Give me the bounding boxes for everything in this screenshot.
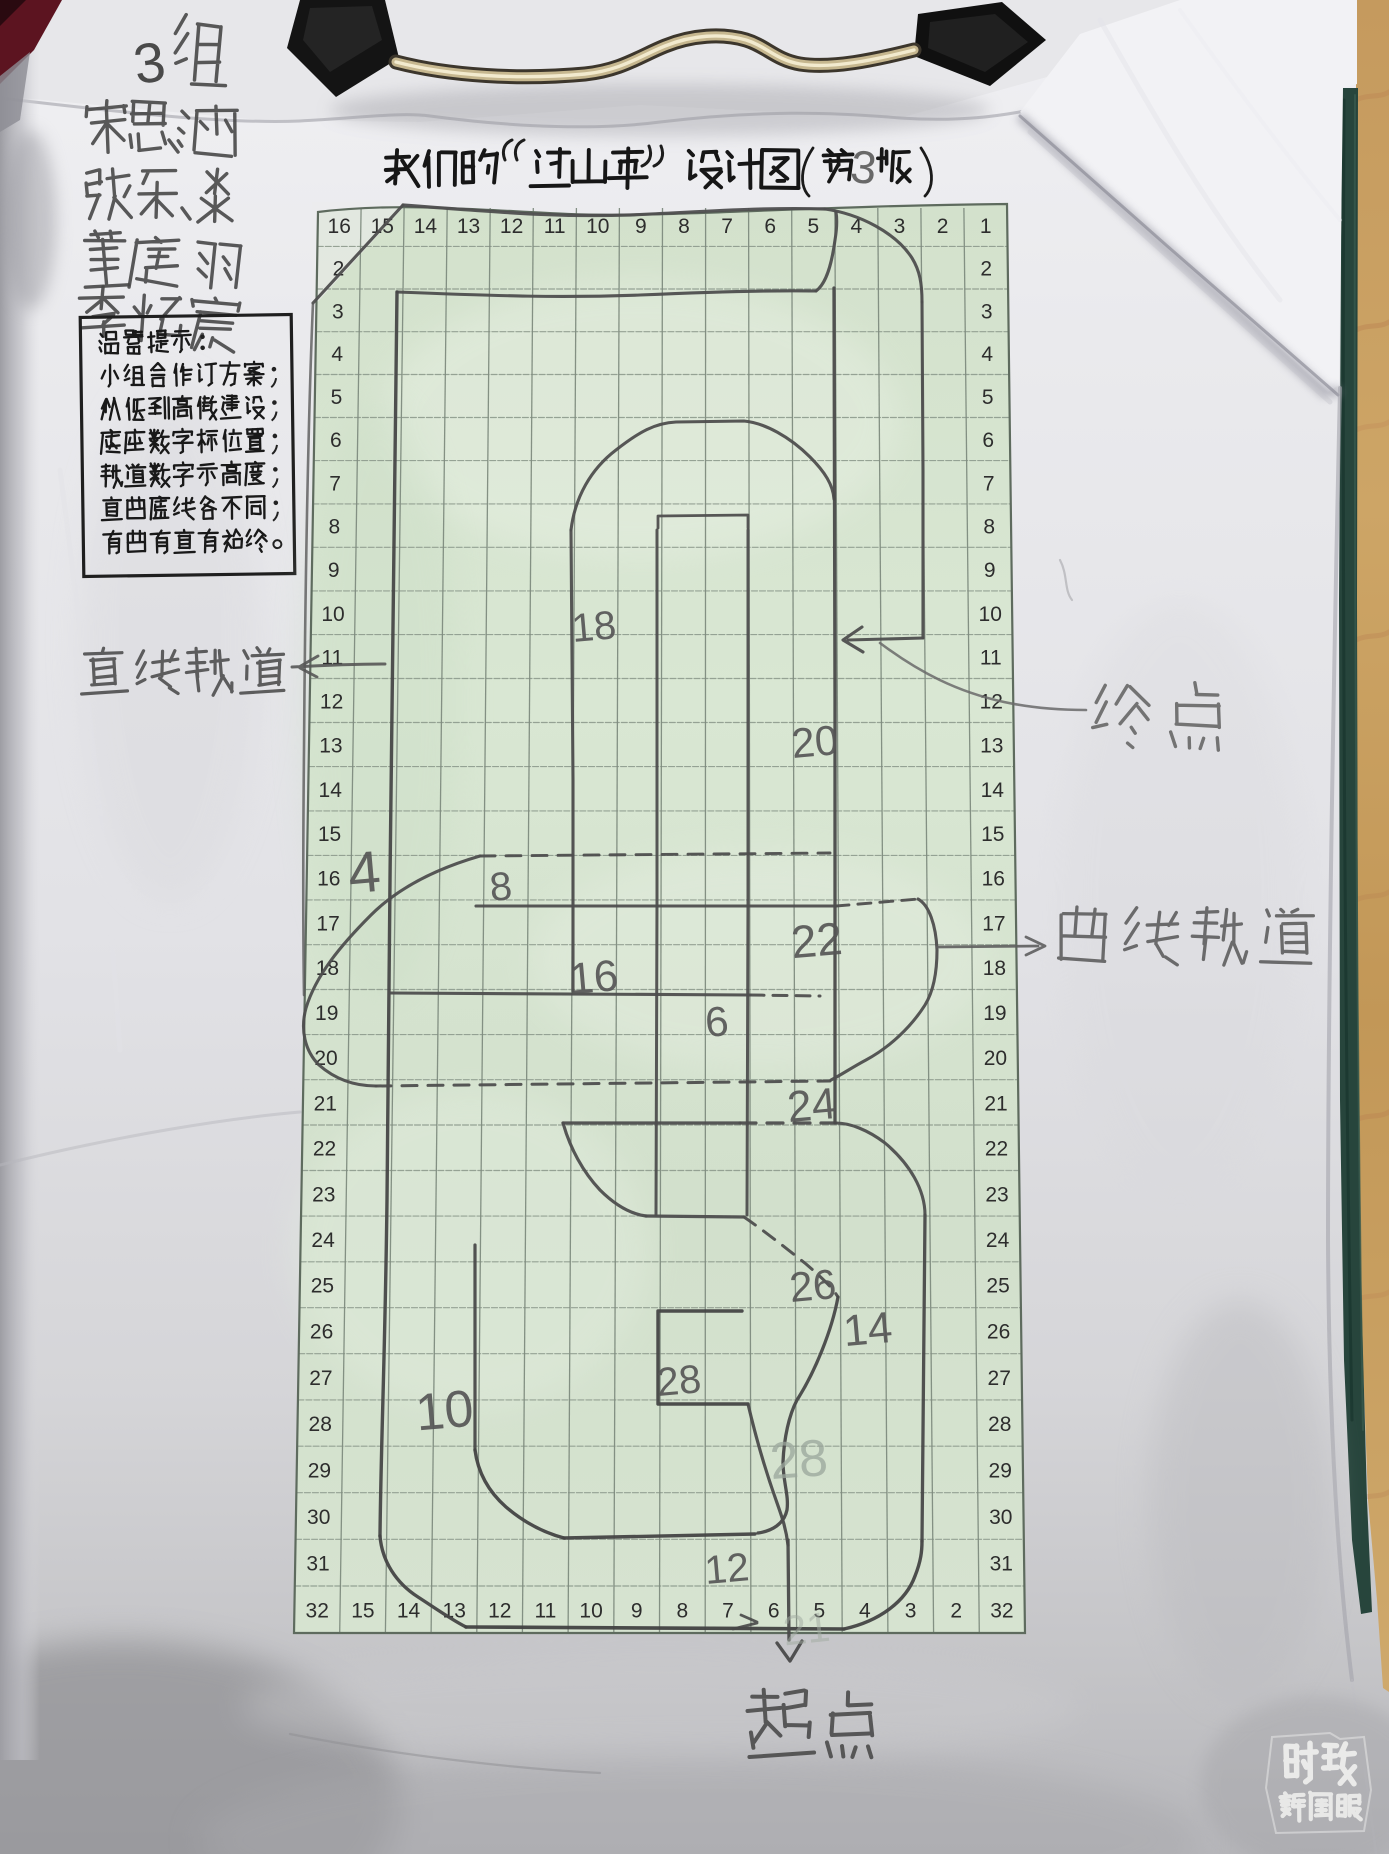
svg-text:28: 28 [988,1413,1011,1436]
svg-text:12: 12 [703,1545,751,1593]
svg-text:25: 25 [986,1275,1009,1298]
svg-text:20: 20 [984,1047,1007,1070]
svg-text:11: 11 [544,215,566,238]
svg-text:3: 3 [894,215,906,238]
svg-text:22: 22 [985,1138,1008,1161]
svg-text:24: 24 [986,1229,1010,1252]
svg-text:2: 2 [950,1599,962,1622]
svg-text:30: 30 [989,1506,1012,1529]
svg-text:16: 16 [317,868,340,891]
svg-text:15: 15 [351,1599,374,1622]
svg-text:20: 20 [314,1047,337,1070]
svg-text:13: 13 [457,215,480,238]
svg-text:8: 8 [983,516,995,539]
svg-text:6: 6 [982,429,994,452]
svg-text:3: 3 [848,140,879,194]
svg-text:26: 26 [787,1260,838,1311]
svg-text:12: 12 [500,215,523,238]
svg-text:1: 1 [980,215,992,238]
svg-text:8: 8 [329,516,341,539]
svg-text:14: 14 [397,1599,421,1622]
svg-text:2: 2 [937,215,949,238]
svg-text:9: 9 [328,559,340,582]
svg-text:9: 9 [631,1599,643,1622]
svg-text:28: 28 [309,1413,332,1436]
svg-text:7: 7 [329,472,341,495]
svg-text:7: 7 [983,472,995,495]
svg-text:22: 22 [789,912,845,968]
svg-text:25: 25 [311,1275,334,1298]
svg-text:11: 11 [980,647,1002,670]
svg-text:5: 5 [807,215,819,238]
svg-text:20: 20 [789,716,840,767]
svg-text:5: 5 [982,386,994,409]
svg-text:28: 28 [768,1429,830,1491]
svg-text:3: 3 [332,300,344,323]
svg-text:9: 9 [984,559,996,582]
svg-text:3: 3 [981,300,993,323]
svg-text:5: 5 [331,386,343,409]
svg-text:22: 22 [313,1138,336,1161]
svg-text:21: 21 [314,1092,337,1115]
svg-text:17: 17 [316,912,339,935]
svg-text:24: 24 [311,1229,335,1252]
svg-text:26: 26 [987,1321,1010,1344]
svg-text:11: 11 [534,1599,556,1622]
svg-text:6: 6 [703,997,730,1046]
svg-text:14: 14 [319,779,343,802]
svg-text:19: 19 [983,1002,1006,1025]
svg-text:10: 10 [321,603,344,626]
svg-text:10: 10 [586,215,609,238]
svg-text:6: 6 [768,1599,780,1622]
svg-text:30: 30 [307,1506,330,1529]
svg-text:32: 32 [990,1599,1013,1622]
svg-text:31: 31 [990,1553,1013,1576]
svg-text:29: 29 [989,1459,1012,1482]
svg-text:10: 10 [579,1599,602,1622]
svg-text:4: 4 [981,343,993,366]
svg-text:21: 21 [781,1603,832,1655]
svg-text:8: 8 [488,864,514,910]
svg-text:7: 7 [721,215,733,238]
svg-text:21: 21 [984,1092,1007,1115]
svg-text:27: 27 [309,1367,332,1390]
svg-text:15: 15 [981,823,1004,846]
svg-text:7: 7 [722,1599,734,1622]
svg-text:29: 29 [308,1459,331,1482]
svg-text:16: 16 [982,868,1005,891]
svg-text:6: 6 [764,215,776,238]
svg-text:13: 13 [319,735,342,758]
svg-text:14: 14 [841,1303,894,1356]
svg-text:32: 32 [306,1599,329,1622]
svg-text:18: 18 [983,957,1006,980]
svg-text:9: 9 [635,215,647,238]
svg-text:31: 31 [306,1553,329,1576]
svg-text:15: 15 [318,823,341,846]
svg-text:10: 10 [413,1380,476,1443]
svg-text:17: 17 [982,912,1005,935]
svg-text:18: 18 [570,603,618,651]
svg-text:10: 10 [979,603,1002,626]
svg-text:19: 19 [315,1002,338,1025]
svg-text:8: 8 [678,215,690,238]
svg-text:3: 3 [905,1599,917,1622]
svg-text:24: 24 [785,1079,838,1132]
svg-text:16: 16 [567,951,620,1004]
svg-text:23: 23 [312,1183,335,1206]
svg-text:12: 12 [488,1599,511,1622]
svg-text:14: 14 [981,779,1005,802]
svg-text:12: 12 [320,691,343,714]
svg-text:6: 6 [330,429,342,452]
svg-text:2: 2 [980,258,992,281]
svg-text:26: 26 [310,1321,333,1344]
svg-text:16: 16 [328,215,351,238]
svg-text:28: 28 [655,1357,703,1405]
svg-text:23: 23 [985,1183,1008,1206]
svg-text:13: 13 [980,735,1003,758]
svg-text:4: 4 [331,343,343,366]
svg-text:8: 8 [677,1599,689,1622]
svg-text:27: 27 [988,1367,1011,1390]
svg-text:4: 4 [345,839,383,907]
svg-text:14: 14 [414,215,438,238]
